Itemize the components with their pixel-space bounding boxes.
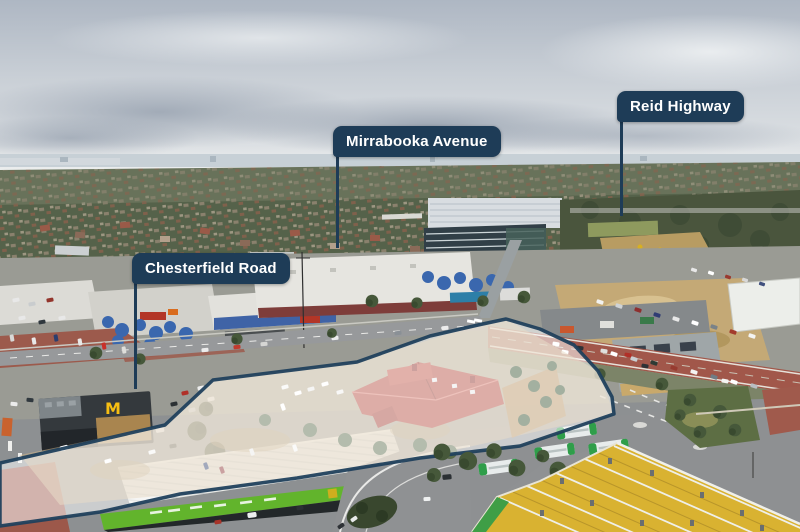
leader-line-mirrabooka-avenue xyxy=(336,154,339,248)
label-chesterfield-road: Chesterfield Road xyxy=(132,253,290,284)
label-mirrabooka-avenue: Mirrabooka Avenue xyxy=(333,126,501,157)
label-chesterfield-road-text: Chesterfield Road xyxy=(145,260,277,277)
aerial-scene: M xyxy=(0,0,800,532)
aerial-photo: M xyxy=(0,0,800,532)
label-reid-highway-text: Reid Highway xyxy=(630,98,731,115)
label-reid-highway: Reid Highway xyxy=(617,91,744,122)
leader-line-chesterfield-road xyxy=(134,282,137,389)
mcdonalds-logo: M xyxy=(105,399,121,418)
leader-line-reid-highway xyxy=(620,120,623,216)
label-mirrabooka-avenue-text: Mirrabooka Avenue xyxy=(346,133,488,150)
